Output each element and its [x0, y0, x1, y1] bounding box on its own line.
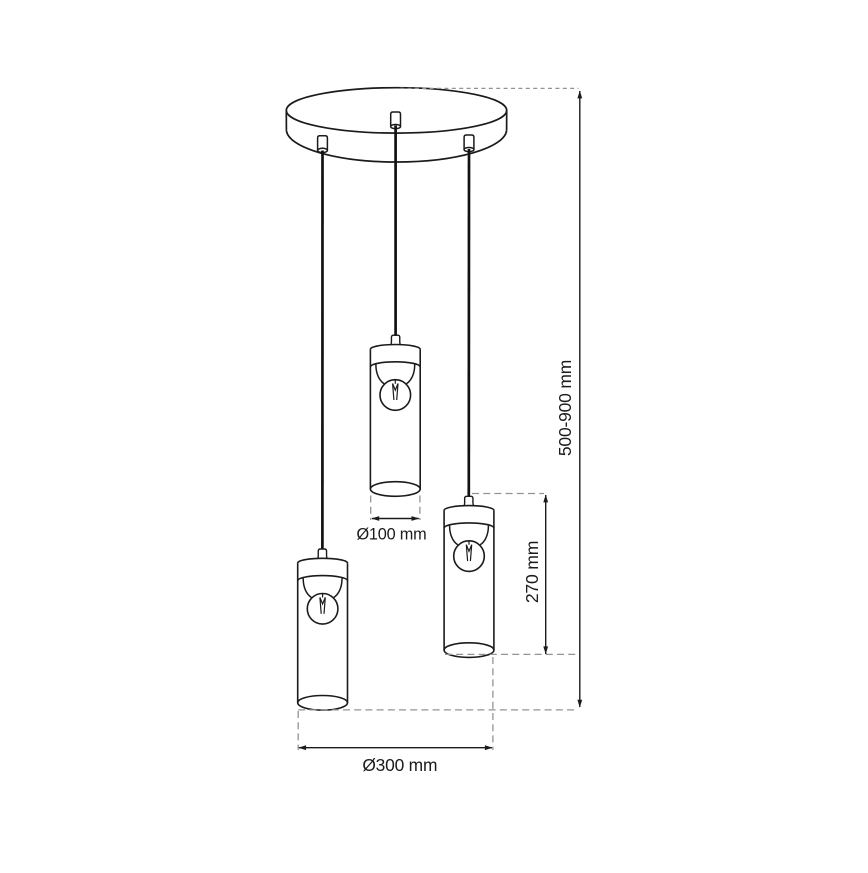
svg-text:500-900 mm: 500-900 mm	[555, 360, 575, 456]
svg-text:Ø100 mm: Ø100 mm	[356, 526, 426, 544]
svg-text:Ø300 mm: Ø300 mm	[362, 755, 437, 775]
svg-text:270 mm: 270 mm	[522, 541, 542, 603]
